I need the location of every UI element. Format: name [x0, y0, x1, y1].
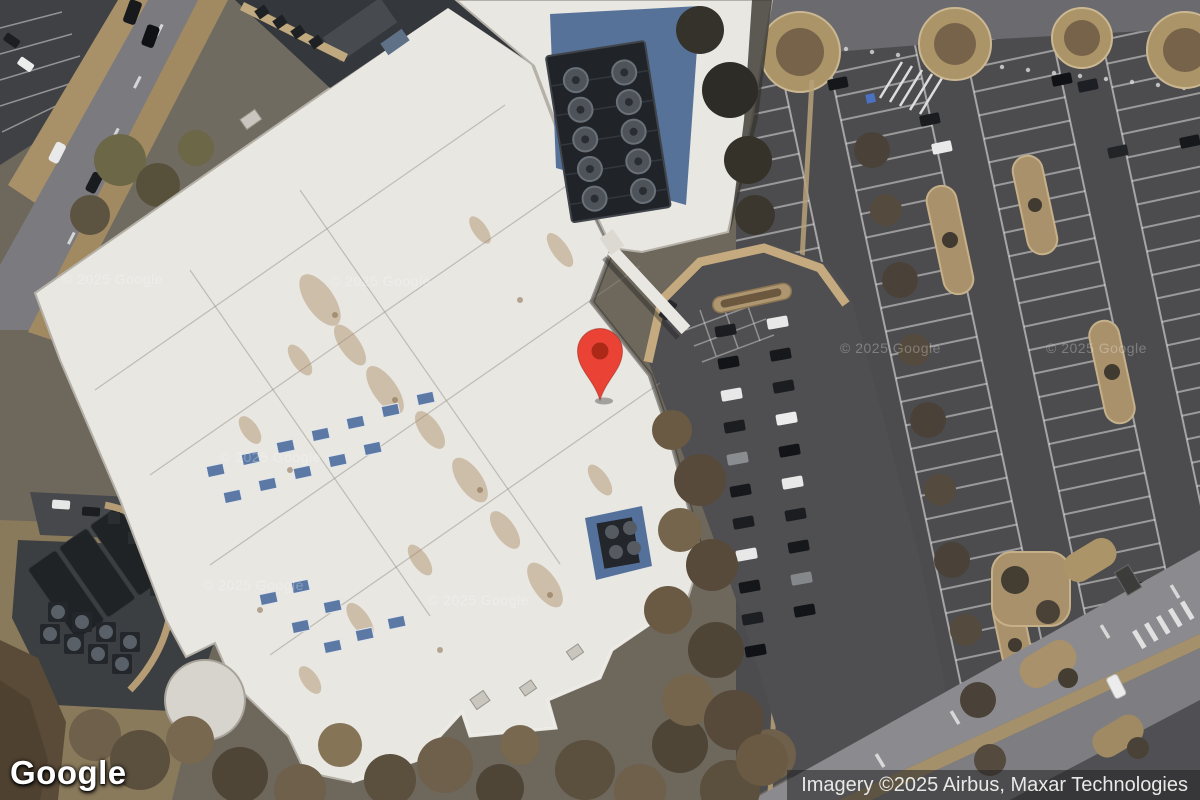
location-pin[interactable]: [568, 316, 632, 408]
pin-dot: [592, 343, 609, 360]
pin-body: [578, 329, 623, 401]
attribution-text: Imagery ©2025 Airbus, Maxar Technologies: [801, 774, 1188, 797]
imagery-attribution: Imagery ©2025 Airbus, Maxar Technologies: [787, 770, 1200, 800]
map-canvas[interactable]: © 2025 Google © 2025 Google © 2025 Googl…: [0, 0, 1200, 800]
google-logo[interactable]: Google: [10, 754, 127, 792]
